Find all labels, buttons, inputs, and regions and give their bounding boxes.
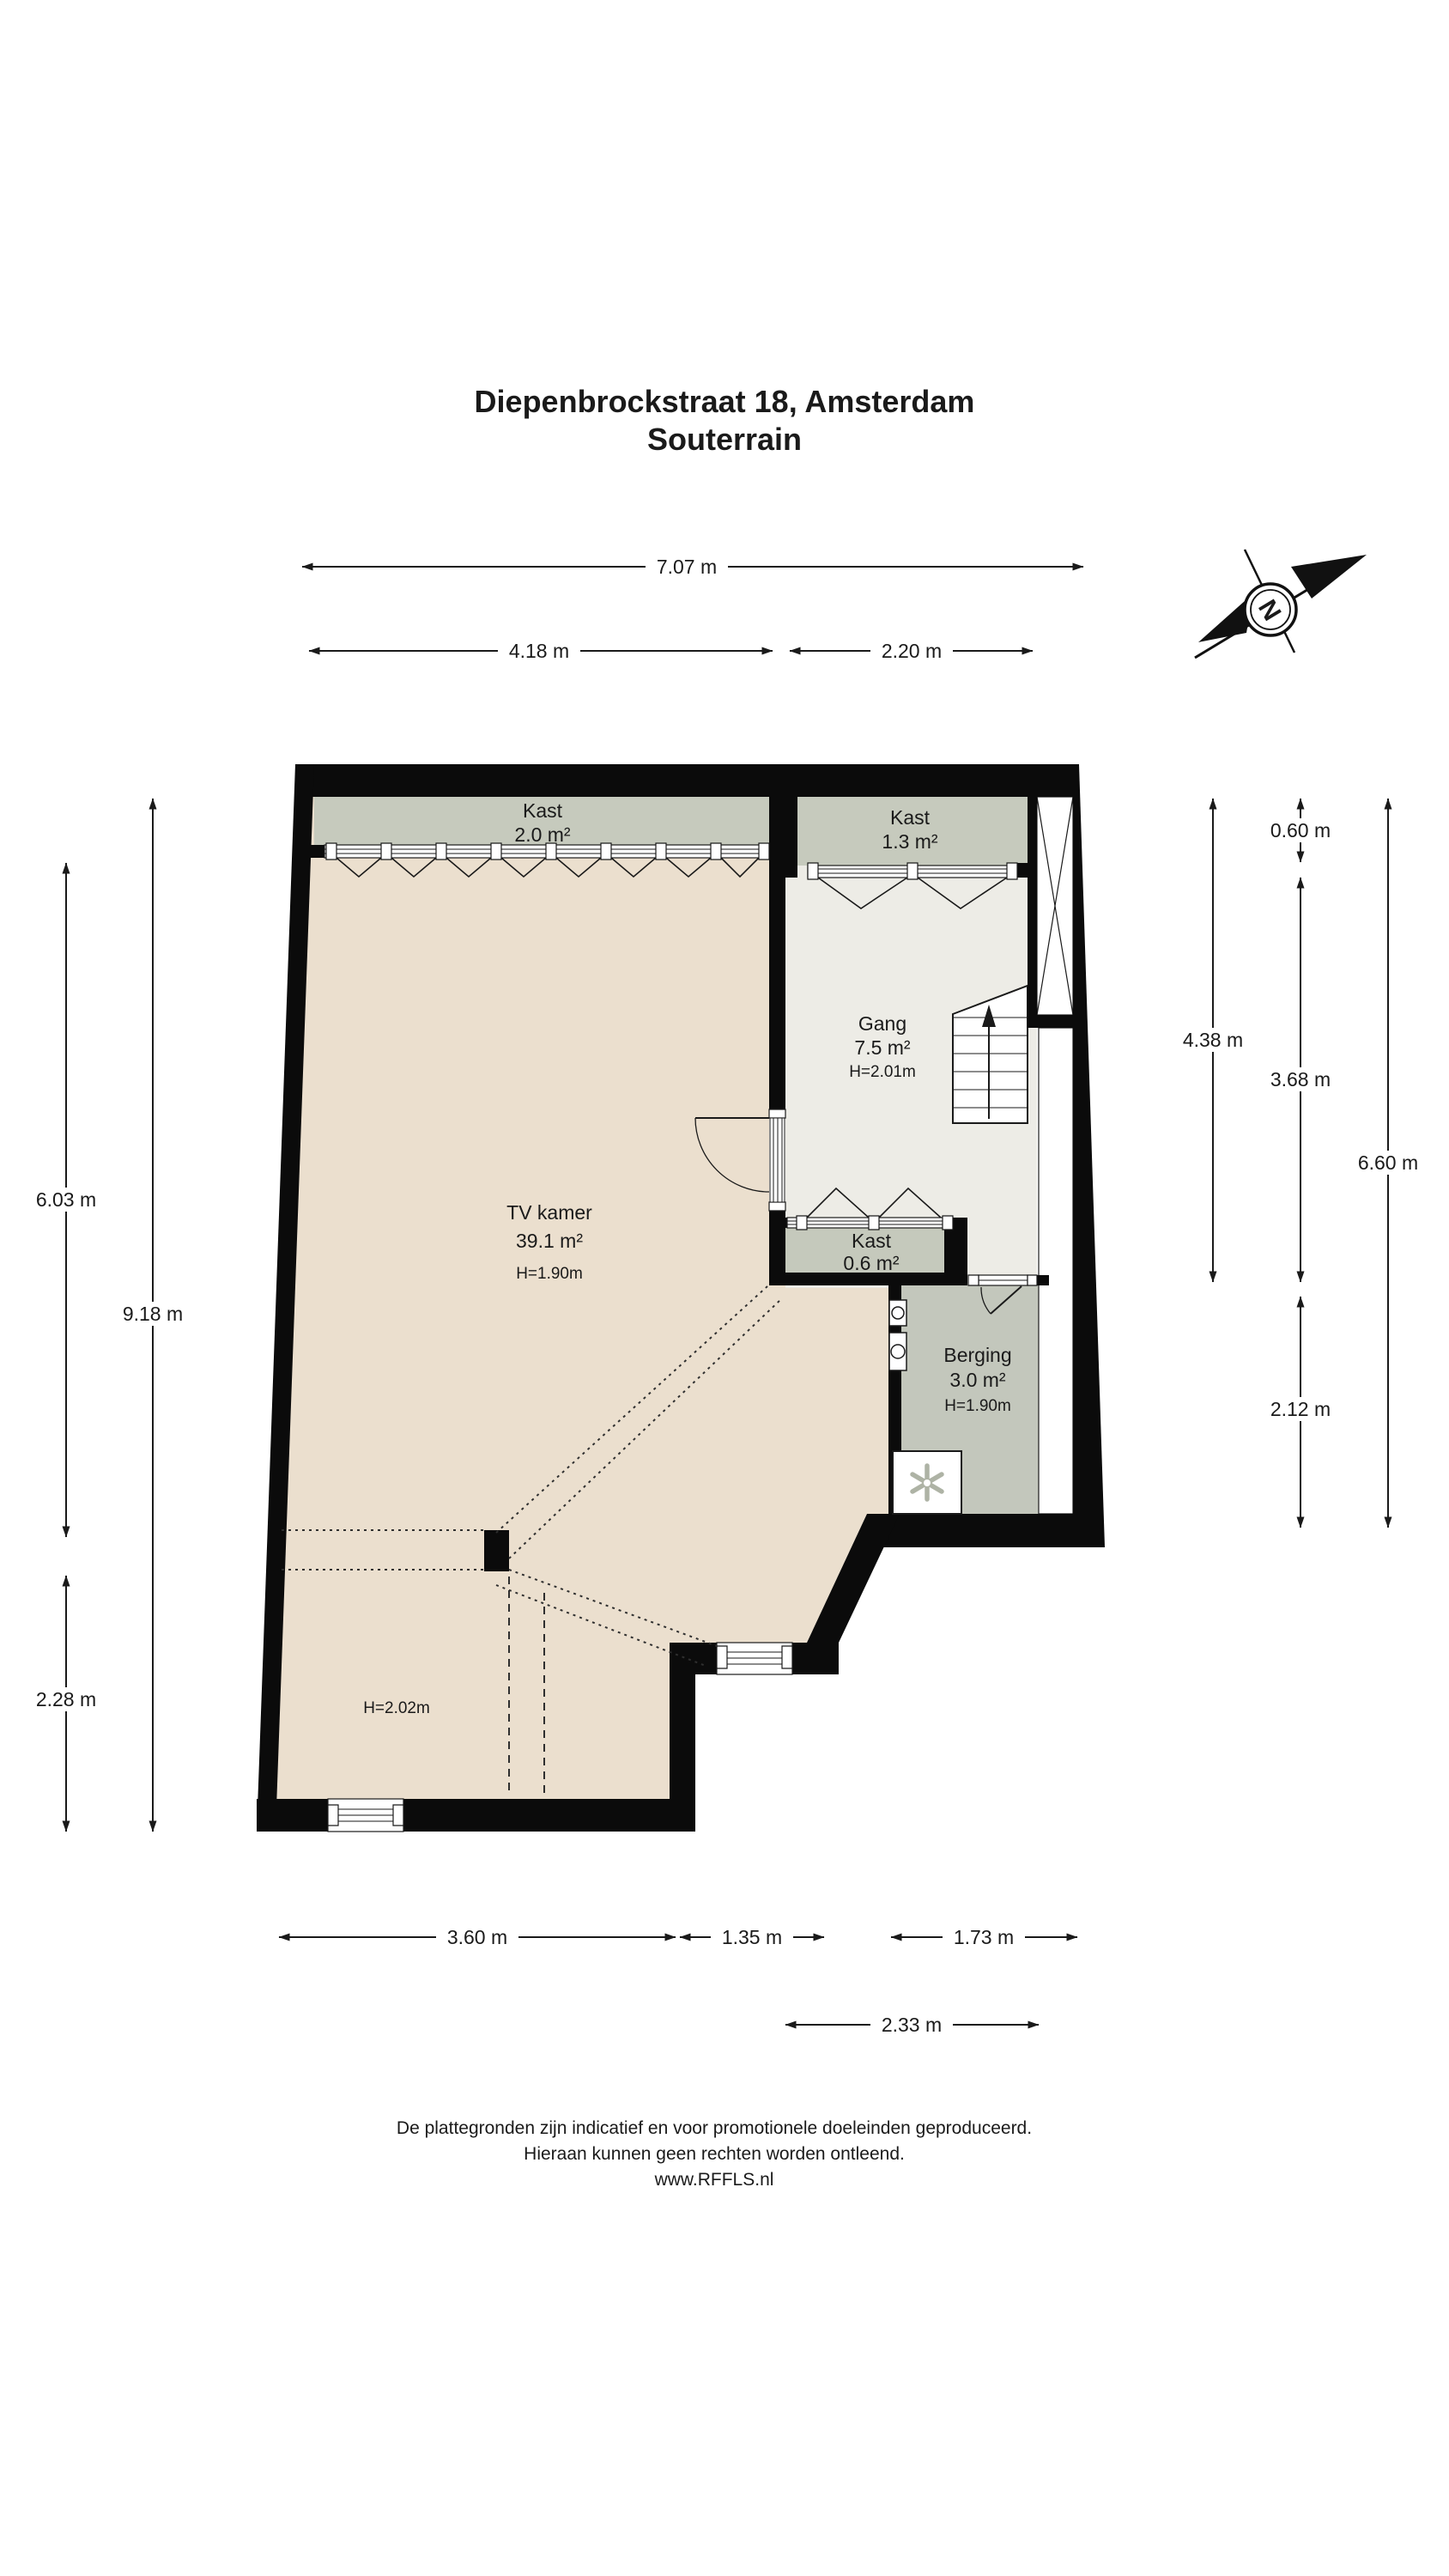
label-lowerroom-height: H=2.02m (363, 1699, 430, 1717)
label-gang-height: H=2.01m (849, 1063, 916, 1081)
dim-top-left: 4.18 m (509, 640, 569, 662)
wall-berging-bottom (867, 1514, 1103, 1547)
tv-door-frame (770, 1118, 785, 1202)
pillar (484, 1530, 509, 1571)
dim-bottom-right: 1.73 m (954, 1926, 1014, 1948)
label-kast13-name: Kast (890, 806, 931, 829)
label-gang-name: Gang (858, 1012, 906, 1035)
label-kast13-area: 1.3 m² (882, 830, 938, 853)
wall-kast06-bottom (769, 1273, 967, 1285)
footer-line-1: De plattegronden zijn indicatief en voor… (397, 2118, 1032, 2138)
label-tvkamer-height: H=1.90m (516, 1265, 583, 1283)
boiler-unit-2-dial (891, 1345, 905, 1358)
label-berging-area: 3.0 m² (949, 1369, 1006, 1391)
dim-right-upper: 4.38 m (1183, 1029, 1243, 1051)
dim-left-total: 9.18 m (123, 1303, 183, 1325)
footer-line-3: www.RFFLS.nl (654, 2170, 774, 2190)
footer-line-2: Hieraan kunnen geen rechten worden ontle… (524, 2144, 905, 2164)
boiler-unit-1-dial (892, 1307, 904, 1319)
label-tvkamer-name: TV kamer (506, 1201, 592, 1224)
side-strip (1039, 1028, 1073, 1514)
footer: De plattegronden zijn indicatief en voor… (397, 2118, 1032, 2190)
right-shafts (1037, 797, 1073, 1514)
label-berging-height: H=1.90m (944, 1397, 1011, 1415)
label-kast06-name: Kast (852, 1230, 892, 1252)
dim-right-total: 6.60 m (1358, 1151, 1418, 1174)
wall-bottom (257, 1799, 695, 1832)
dim-right-middle: 3.68 m (1270, 1068, 1331, 1091)
wall-kast13-sill-stub (1017, 863, 1028, 878)
dim-top-right: 2.20 m (882, 640, 942, 662)
label-kast2-name: Kast (523, 799, 563, 822)
floorplan-canvas: Diepenbrockstraat 18, Amsterdam Souterra… (0, 0, 1449, 2576)
wall-step-right-block (790, 1643, 839, 1674)
page-subtitle: Souterrain (647, 422, 802, 457)
label-tvkamer-area: 39.1 m² (516, 1230, 583, 1252)
dim-right-top: 0.60 m (1270, 819, 1331, 841)
floorplan-page: Diepenbrockstraat 18, Amsterdam Souterra… (0, 0, 1449, 2576)
wall-kast2-sill-stub (307, 845, 326, 858)
label-gang-area: 7.5 m² (854, 1036, 911, 1059)
dim-left-upper: 6.03 m (36, 1188, 96, 1211)
wall-berging-door-right (1037, 1275, 1049, 1285)
label-kast06-area: 0.6 m² (843, 1252, 900, 1274)
dim-right-lower: 2.12 m (1270, 1398, 1331, 1420)
dim-left-lower: 2.28 m (36, 1688, 96, 1710)
wall-top (300, 764, 1077, 797)
wall-tv-gang-upper (769, 797, 785, 1109)
label-kast2-area: 2.0 m² (514, 823, 571, 846)
dim-bottom-middle: 1.35 m (722, 1926, 782, 1948)
page-title: Diepenbrockstraat 18, Amsterdam (475, 384, 975, 419)
label-berging-name: Berging (943, 1344, 1011, 1366)
wall-kast13-left (785, 797, 797, 878)
dim-bottom-offset: 2.33 m (882, 2014, 942, 2036)
wall-shaft-band (1037, 1015, 1073, 1028)
dim-top-total: 7.07 m (657, 556, 717, 578)
dim-bottom-left: 3.60 m (447, 1926, 507, 1948)
wall-right (1073, 764, 1105, 1547)
wall-shaft-left (1028, 797, 1037, 1028)
compass: N (1195, 550, 1367, 658)
